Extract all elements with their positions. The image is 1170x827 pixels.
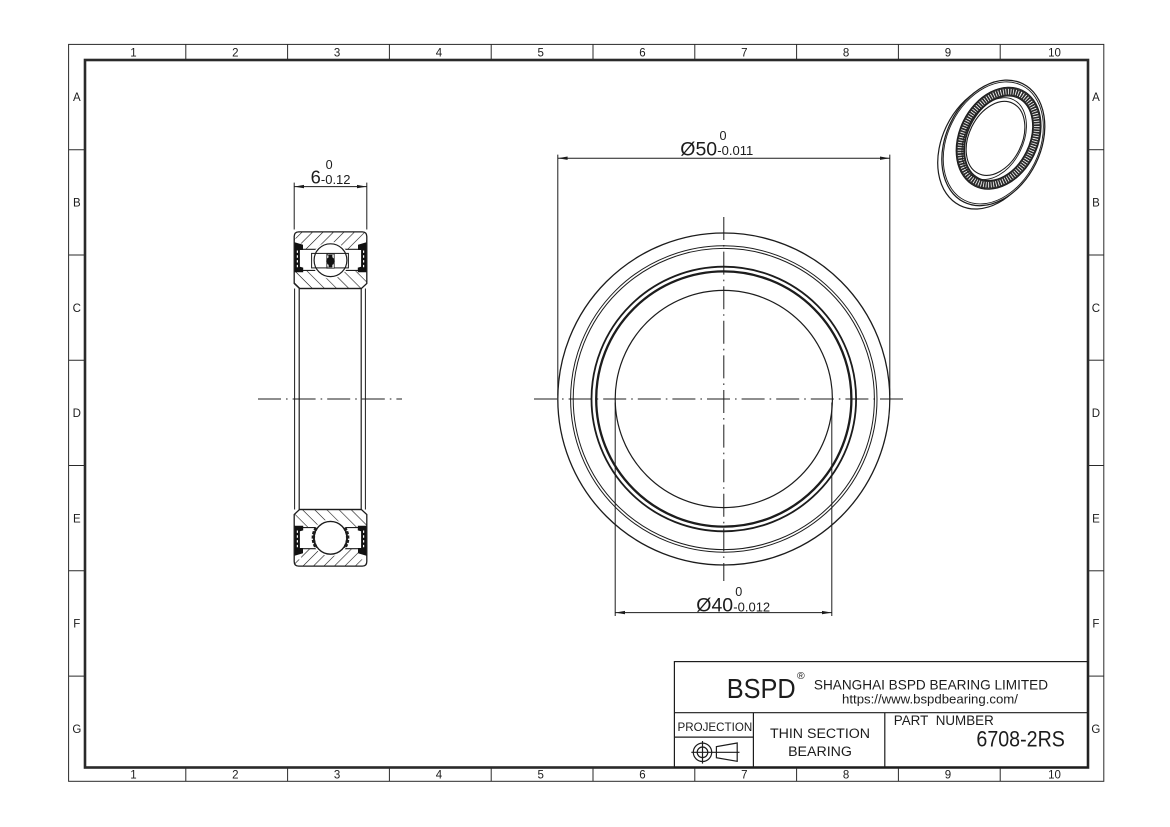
svg-text:6: 6: [639, 770, 645, 782]
svg-text:D: D: [73, 408, 81, 420]
svg-text:BEARING: BEARING: [788, 744, 852, 760]
svg-text:B: B: [1092, 198, 1100, 210]
svg-text:6708-2RS: 6708-2RS: [976, 727, 1065, 752]
svg-text:2: 2: [232, 770, 238, 782]
svg-text:8: 8: [843, 47, 849, 59]
svg-text:B: B: [73, 198, 81, 210]
svg-text:5: 5: [537, 47, 543, 59]
svg-text:8: 8: [843, 770, 849, 782]
svg-text:0: 0: [720, 129, 727, 143]
svg-text:5: 5: [537, 770, 543, 782]
svg-text:10: 10: [1048, 770, 1061, 782]
svg-text:G: G: [1091, 724, 1100, 736]
svg-text:BSPD: BSPD: [727, 673, 796, 704]
svg-text:Ø50: Ø50: [680, 138, 717, 160]
svg-text:0: 0: [735, 585, 742, 599]
svg-text:C: C: [1092, 303, 1100, 315]
svg-text:-0.012: -0.012: [733, 599, 770, 614]
svg-text:0: 0: [326, 158, 333, 172]
svg-text:SHANGHAI BSPD BEARING LIMITED: SHANGHAI BSPD BEARING LIMITED: [814, 678, 1048, 693]
svg-text:1: 1: [130, 770, 136, 782]
svg-text:https://www.bspdbearing.com/: https://www.bspdbearing.com/: [842, 692, 1018, 707]
svg-text:6: 6: [639, 47, 645, 59]
svg-text:PROJECTION: PROJECTION: [678, 721, 753, 734]
svg-text:-0.011: -0.011: [717, 143, 753, 158]
svg-text:4: 4: [436, 47, 443, 59]
svg-text:1: 1: [130, 47, 136, 59]
svg-text:F: F: [73, 619, 80, 631]
svg-text:D: D: [1092, 408, 1100, 420]
svg-text:PART NUMBER: PART NUMBER: [894, 713, 994, 728]
svg-text:9: 9: [945, 47, 951, 59]
svg-text:7: 7: [741, 47, 747, 59]
svg-text:3: 3: [334, 47, 340, 59]
svg-text:F: F: [1092, 619, 1099, 631]
svg-text:4: 4: [436, 770, 443, 782]
svg-text:E: E: [1092, 513, 1100, 525]
svg-text:E: E: [73, 513, 81, 525]
svg-text:THIN SECTION: THIN SECTION: [770, 726, 870, 742]
svg-text:2: 2: [232, 47, 238, 59]
svg-text:6: 6: [311, 167, 321, 188]
svg-text:10: 10: [1048, 47, 1061, 59]
svg-text:3: 3: [334, 770, 340, 782]
svg-text:G: G: [72, 724, 81, 736]
svg-text:C: C: [73, 303, 81, 315]
svg-text:A: A: [73, 92, 81, 104]
svg-text:Ø40: Ø40: [696, 594, 733, 616]
svg-text:9: 9: [945, 770, 951, 782]
svg-text:A: A: [1092, 92, 1100, 104]
svg-text:-0.12: -0.12: [321, 172, 351, 187]
svg-text:®: ®: [797, 670, 805, 682]
svg-text:7: 7: [741, 770, 747, 782]
